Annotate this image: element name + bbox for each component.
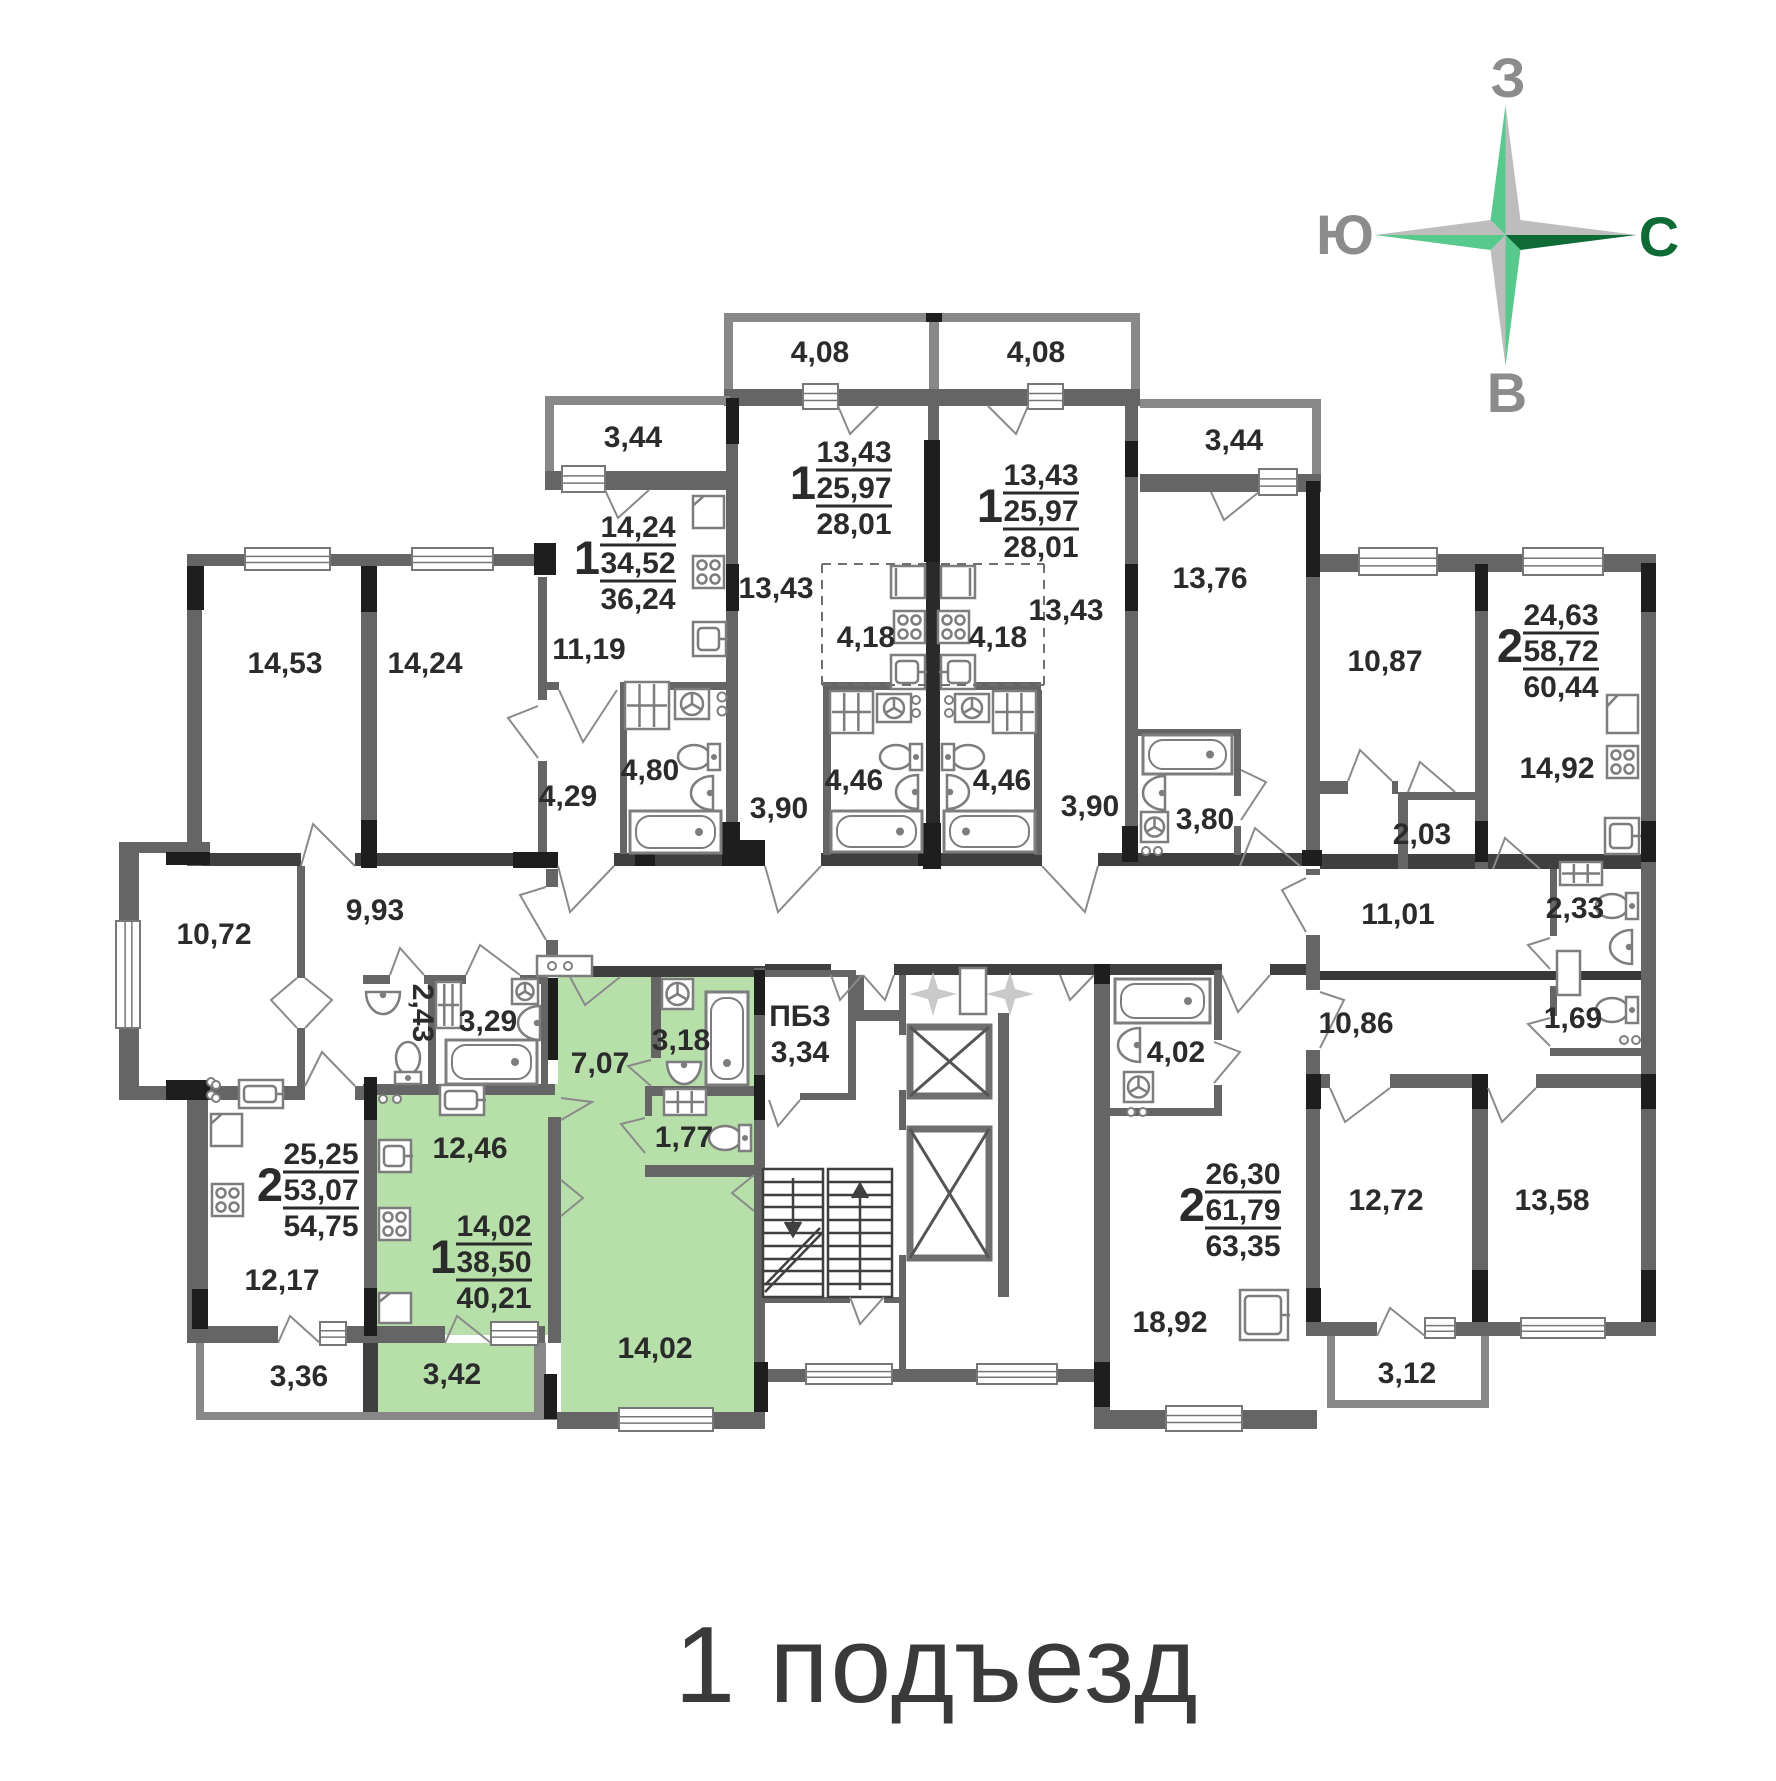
svg-text:1: 1 <box>574 531 600 584</box>
svg-text:11,19: 11,19 <box>552 633 625 666</box>
svg-text:13,58: 13,58 <box>1514 1184 1589 1217</box>
svg-text:4,80: 4,80 <box>621 754 679 787</box>
svg-text:3,36: 3,36 <box>270 1360 328 1393</box>
svg-text:3,12: 3,12 <box>1378 1357 1436 1390</box>
svg-text:4,08: 4,08 <box>1007 336 1065 369</box>
svg-text:18,92: 18,92 <box>1132 1306 1207 1339</box>
svg-text:14,24: 14,24 <box>387 647 462 680</box>
svg-text:4,46: 4,46 <box>973 764 1031 797</box>
svg-text:10,72: 10,72 <box>176 918 251 951</box>
svg-text:14,24: 14,24 <box>600 511 675 544</box>
svg-text:25,97: 25,97 <box>1003 495 1078 528</box>
svg-text:26,30: 26,30 <box>1205 1158 1280 1191</box>
svg-text:2,03: 2,03 <box>1393 818 1451 851</box>
svg-text:1,77: 1,77 <box>655 1121 713 1154</box>
svg-text:1 подъезд: 1 подъезд <box>675 1604 1200 1726</box>
svg-text:4,02: 4,02 <box>1147 1036 1205 1069</box>
svg-text:3,90: 3,90 <box>750 792 808 825</box>
svg-text:25,25: 25,25 <box>283 1138 358 1171</box>
svg-text:4,18: 4,18 <box>969 621 1027 654</box>
svg-text:63,35: 63,35 <box>1205 1230 1280 1263</box>
svg-text:3,42: 3,42 <box>423 1358 481 1391</box>
svg-text:3,34: 3,34 <box>771 1036 830 1069</box>
svg-text:36,24: 36,24 <box>600 583 675 616</box>
svg-text:4,08: 4,08 <box>791 336 849 369</box>
svg-text:3,90: 3,90 <box>1061 790 1119 823</box>
svg-text:13,43: 13,43 <box>1003 459 1078 492</box>
svg-text:12,72: 12,72 <box>1348 1184 1423 1217</box>
svg-text:38,50: 38,50 <box>456 1246 531 1279</box>
svg-text:28,01: 28,01 <box>1003 531 1078 564</box>
svg-text:53,07: 53,07 <box>283 1174 358 1207</box>
svg-text:10,87: 10,87 <box>1347 645 1422 678</box>
svg-text:2,33: 2,33 <box>1546 892 1604 925</box>
svg-text:40,21: 40,21 <box>456 1282 531 1315</box>
svg-text:4,46: 4,46 <box>825 764 883 797</box>
svg-text:2: 2 <box>1179 1178 1205 1231</box>
svg-text:4,29: 4,29 <box>539 780 597 813</box>
svg-text:34,52: 34,52 <box>600 547 675 580</box>
svg-text:3,44: 3,44 <box>1205 424 1264 457</box>
svg-text:3,29: 3,29 <box>459 1005 517 1038</box>
svg-text:1: 1 <box>977 479 1003 532</box>
svg-text:28,01: 28,01 <box>816 508 891 541</box>
svg-text:14,53: 14,53 <box>247 647 322 680</box>
svg-text:4,18: 4,18 <box>837 621 895 654</box>
svg-text:54,75: 54,75 <box>283 1210 358 1243</box>
svg-text:3,44: 3,44 <box>604 421 663 454</box>
svg-text:24,63: 24,63 <box>1523 599 1598 632</box>
svg-text:60,44: 60,44 <box>1523 671 1598 704</box>
svg-text:61,79: 61,79 <box>1205 1194 1280 1227</box>
svg-text:3,80: 3,80 <box>1176 803 1234 836</box>
svg-text:14,92: 14,92 <box>1519 752 1594 785</box>
svg-text:13,43: 13,43 <box>738 572 813 605</box>
svg-text:14,02: 14,02 <box>456 1210 531 1243</box>
svg-text:10,86: 10,86 <box>1318 1007 1393 1040</box>
svg-text:З: З <box>1490 46 1525 109</box>
svg-text:25,97: 25,97 <box>816 472 891 505</box>
svg-text:12,46: 12,46 <box>432 1132 507 1165</box>
svg-text:13,43: 13,43 <box>1028 594 1103 627</box>
svg-text:2: 2 <box>1497 619 1523 672</box>
svg-text:58,72: 58,72 <box>1523 635 1598 668</box>
svg-text:1: 1 <box>790 456 816 509</box>
svg-text:С: С <box>1639 205 1679 268</box>
svg-text:1: 1 <box>430 1230 456 1283</box>
svg-text:2,43: 2,43 <box>406 984 439 1042</box>
svg-text:1,69: 1,69 <box>1544 1002 1602 1035</box>
svg-text:13,76: 13,76 <box>1172 562 1247 595</box>
svg-text:14,02: 14,02 <box>617 1332 692 1365</box>
svg-text:В: В <box>1487 361 1527 424</box>
svg-text:13,43: 13,43 <box>816 436 891 469</box>
svg-text:12,17: 12,17 <box>244 1264 319 1297</box>
svg-text:7,07: 7,07 <box>571 1047 629 1080</box>
svg-text:Ю: Ю <box>1316 203 1374 266</box>
svg-text:11,01: 11,01 <box>1361 898 1434 931</box>
svg-text:9,93: 9,93 <box>346 894 404 927</box>
svg-text:2: 2 <box>257 1158 283 1211</box>
svg-text:ПБЗ: ПБЗ <box>769 1000 831 1033</box>
svg-text:3,18: 3,18 <box>652 1024 710 1057</box>
